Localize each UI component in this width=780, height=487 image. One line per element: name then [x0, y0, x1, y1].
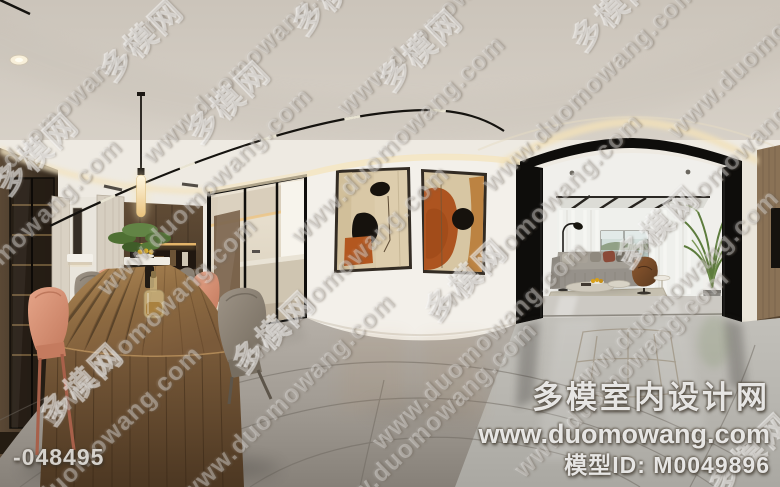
throw-pillow: [616, 252, 626, 262]
kitchen-window: [281, 180, 304, 266]
throw-pillow-rust: [603, 250, 616, 262]
wood-panel-wall: [742, 145, 780, 326]
model-id: 模型ID: M0049896: [478, 453, 770, 479]
render-id: -048495: [13, 444, 104, 471]
fruit-bowl: [136, 249, 154, 259]
throw-pillow: [590, 252, 601, 262]
site-url: www.duomowang.com: [478, 419, 770, 449]
throw-pillow: [562, 253, 575, 265]
tv-niche: [771, 208, 780, 268]
watermark-brand-block: 多模室内设计网 www.duomowang.com 模型ID: M0049896: [478, 381, 770, 479]
throw-pillow: [576, 252, 589, 264]
abstract-wall-art-right: [421, 169, 487, 275]
abstract-wall-art-left: [334, 167, 412, 273]
panorama-render: www.duomowang.com www.duomowang.com www.…: [0, 0, 780, 487]
site-name-cn: 多模室内设计网: [478, 381, 770, 416]
floating-counter: [67, 254, 93, 262]
